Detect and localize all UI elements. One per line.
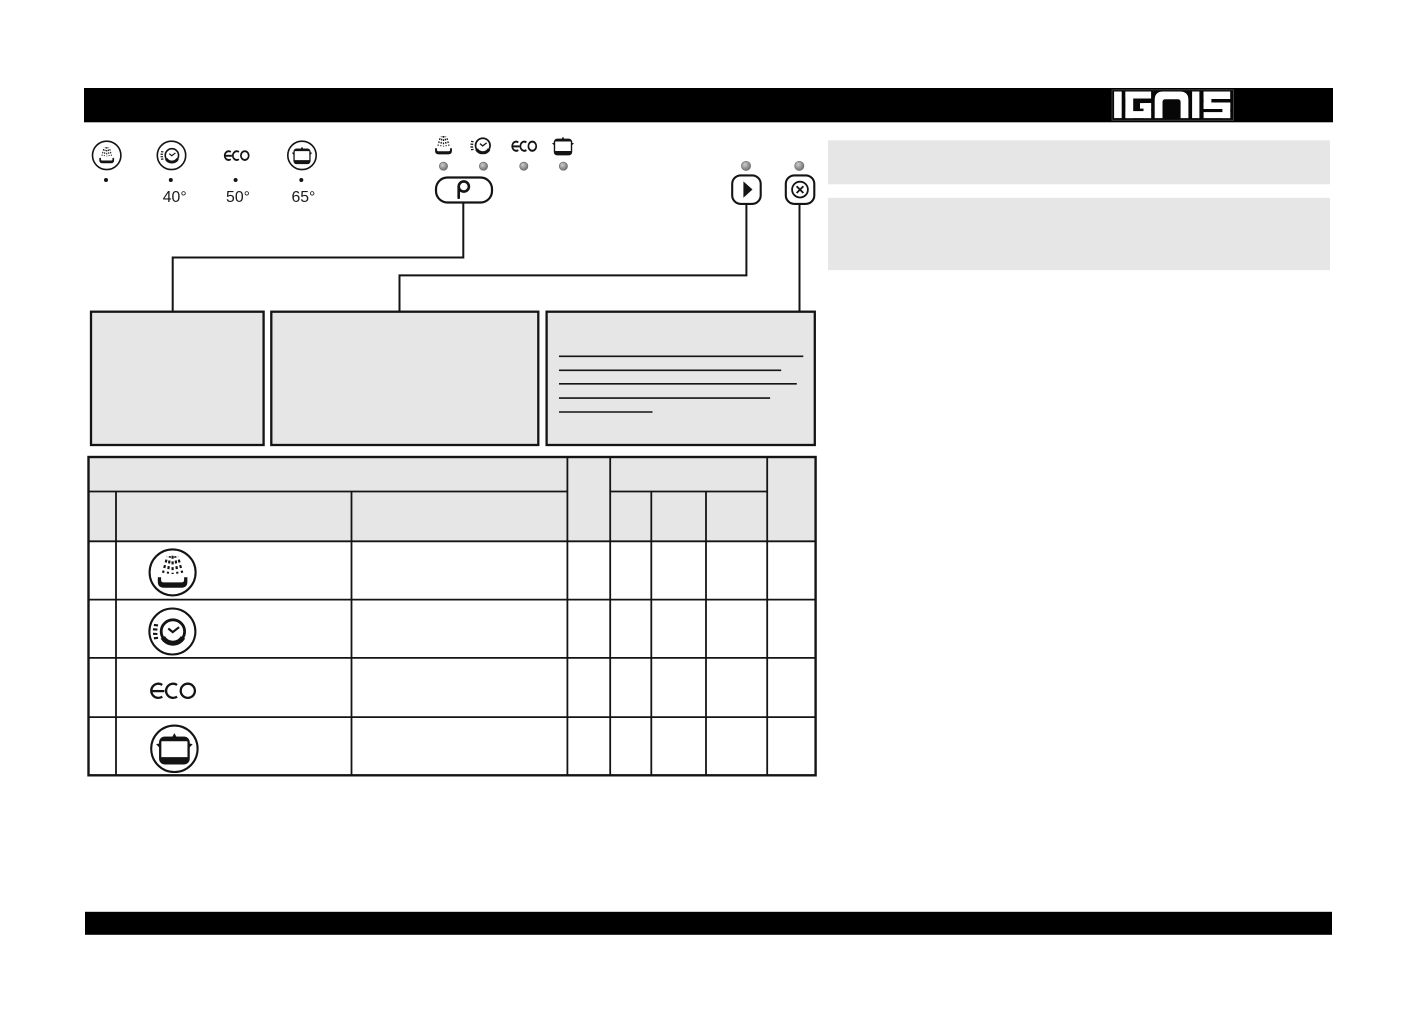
svg-text:50°: 50° <box>226 189 250 206</box>
svg-text:40°: 40° <box>163 189 187 206</box>
svg-text:65°: 65° <box>291 189 315 206</box>
